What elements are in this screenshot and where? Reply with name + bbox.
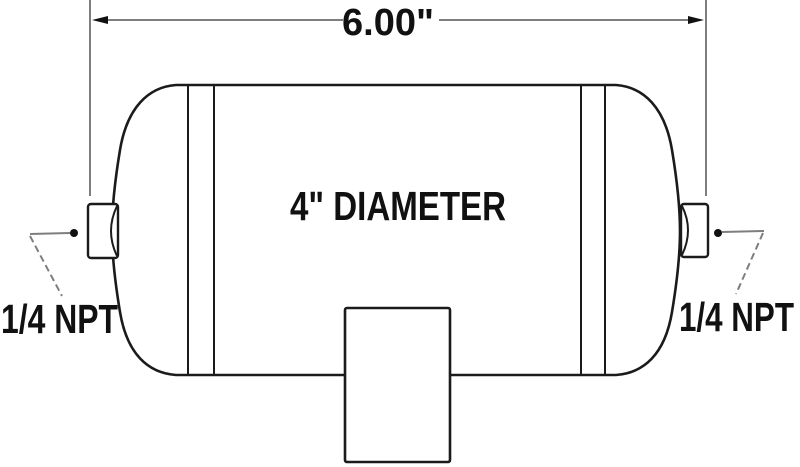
length-dimension-label: 6.00" — [342, 2, 434, 44]
diameter-label: 4" DIAMETER — [290, 183, 506, 229]
right-port-label: 1/4 NPT — [679, 294, 794, 340]
right-leader-diagonal — [736, 233, 763, 294]
right-leader-dot — [714, 229, 722, 237]
left-leader-horizontal — [30, 233, 70, 234]
right-dimension-arrowhead — [688, 16, 704, 24]
right-leader-horizontal — [722, 231, 764, 232]
left-dimension-arrowhead — [92, 16, 108, 24]
bottom-port-block — [345, 308, 450, 462]
left-leader-diagonal — [30, 236, 62, 296]
left-leader-dot — [70, 229, 78, 237]
drawing-canvas: 6.00" 4" DIAMETER 1/4 NPT 1/4 NPT — [0, 0, 800, 467]
air-tank-technical-drawing: 6.00" 4" DIAMETER 1/4 NPT 1/4 NPT — [0, 0, 800, 467]
left-port-label: 1/4 NPT — [1, 296, 118, 342]
